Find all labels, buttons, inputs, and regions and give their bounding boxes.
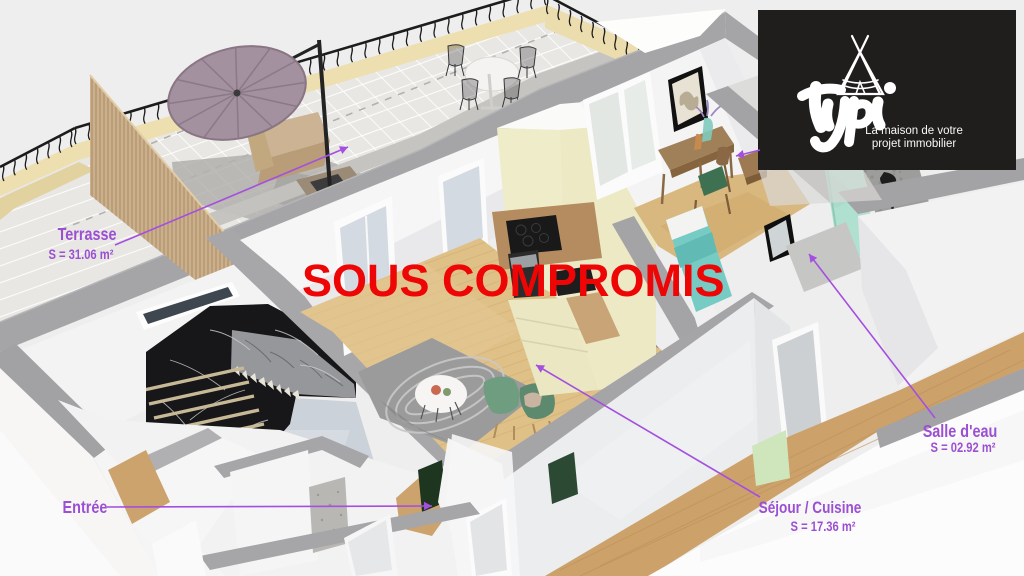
svg-text:S = 02.92 m²: S = 02.92 m²: [931, 440, 996, 455]
svg-text:Terrasse: Terrasse: [58, 225, 117, 245]
svg-text:La maison de votre: La maison de votre: [865, 125, 963, 137]
svg-text:Salle d'eau: Salle d'eau: [923, 422, 998, 442]
svg-text:Entrée: Entrée: [63, 498, 108, 518]
svg-text:Séjour / Cuisine: Séjour / Cuisine: [759, 499, 862, 518]
svg-text:SOUS COMPROMIS: SOUS COMPROMIS: [302, 255, 725, 306]
svg-text:S = 17.36 m²: S = 17.36 m²: [791, 519, 856, 534]
svg-text:S = 31.06 m²: S = 31.06 m²: [48, 247, 113, 262]
svg-text:projet immobilier: projet immobilier: [872, 138, 957, 150]
